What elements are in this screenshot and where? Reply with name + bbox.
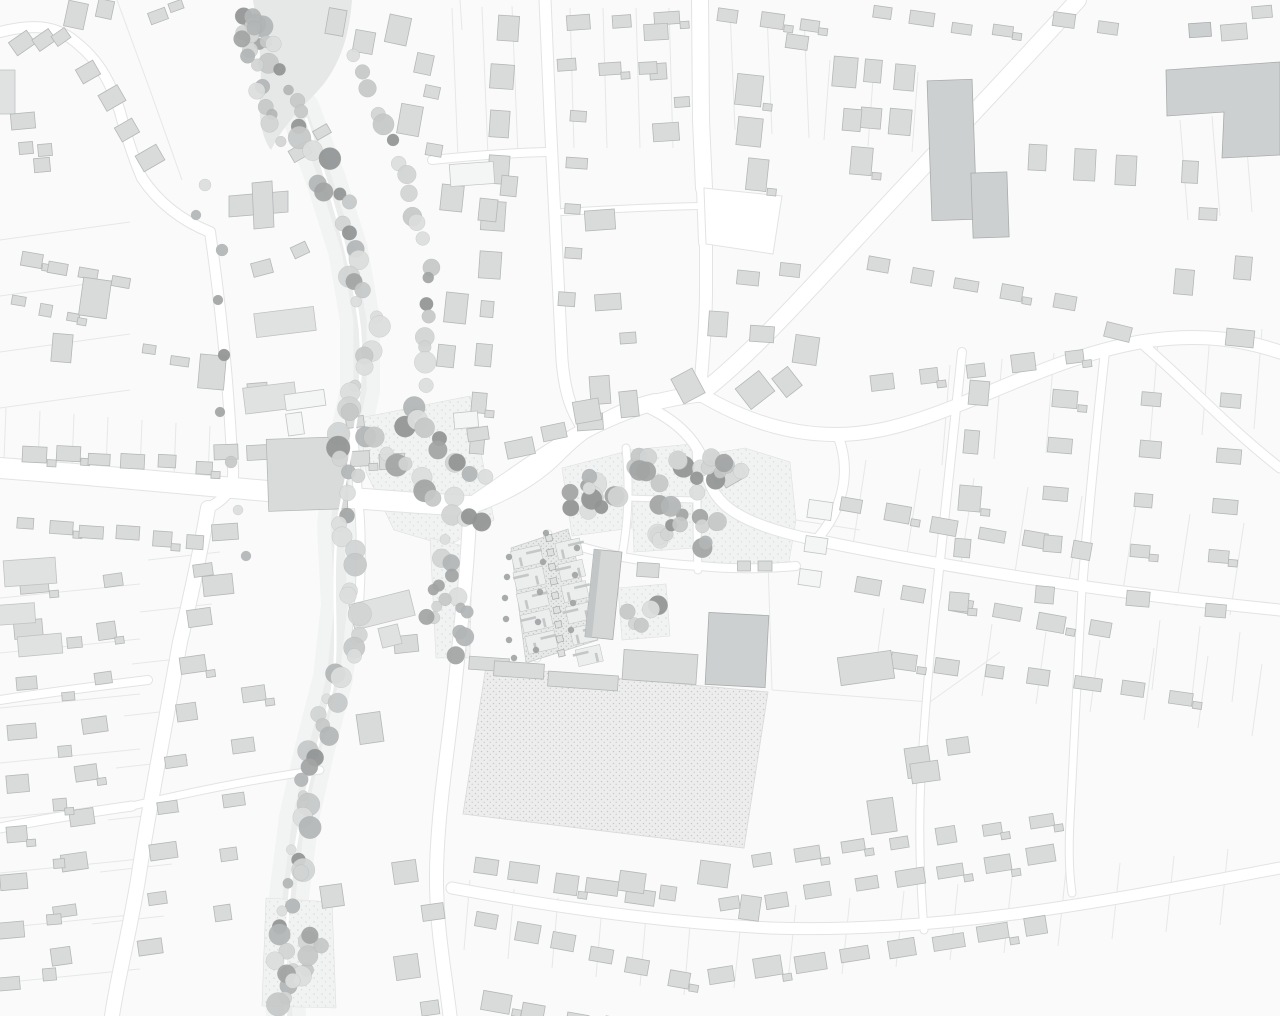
tree — [225, 456, 237, 468]
building — [1192, 701, 1202, 709]
tree — [218, 349, 230, 361]
tree — [355, 282, 371, 298]
tree — [319, 148, 341, 170]
tree — [347, 49, 360, 62]
tree — [314, 182, 333, 201]
building — [820, 857, 830, 865]
building — [697, 860, 730, 888]
building — [554, 873, 580, 896]
building — [981, 509, 991, 517]
building — [1009, 937, 1019, 945]
tree — [351, 296, 362, 307]
building — [738, 895, 761, 922]
building — [550, 931, 575, 951]
building — [736, 116, 763, 147]
building — [49, 590, 59, 598]
building — [935, 825, 957, 845]
tree — [331, 667, 352, 688]
building — [97, 777, 107, 785]
building — [1028, 144, 1047, 171]
building — [708, 311, 729, 337]
building — [946, 737, 970, 756]
building — [213, 904, 231, 922]
tree — [478, 469, 493, 484]
tree — [583, 482, 596, 495]
tree — [445, 569, 458, 582]
building — [911, 267, 935, 286]
building — [622, 649, 698, 684]
building — [196, 461, 213, 474]
building — [186, 607, 212, 627]
building — [62, 692, 75, 701]
building — [206, 669, 216, 677]
tree — [299, 816, 322, 839]
building — [137, 938, 163, 956]
tree — [199, 179, 211, 191]
tree — [340, 587, 357, 604]
tree — [634, 618, 649, 633]
site-plan-page — [0, 0, 1280, 1016]
building — [1216, 448, 1242, 464]
building — [158, 454, 176, 468]
building — [467, 426, 490, 442]
tree — [241, 551, 251, 561]
building — [1220, 23, 1247, 41]
site-tree — [535, 619, 541, 625]
building — [1121, 680, 1145, 697]
building — [767, 188, 777, 196]
building — [659, 885, 677, 901]
site-tree — [540, 559, 546, 565]
building — [964, 874, 974, 882]
building — [1212, 498, 1238, 514]
building — [211, 523, 238, 541]
tree — [294, 105, 308, 119]
building — [286, 412, 305, 436]
building — [186, 535, 204, 550]
building — [1043, 535, 1062, 553]
building — [708, 966, 735, 985]
tree — [373, 114, 394, 135]
tree — [455, 628, 474, 647]
site-tree — [570, 600, 576, 606]
building — [1073, 149, 1096, 182]
building — [1115, 155, 1137, 186]
building — [992, 24, 1013, 37]
tree — [332, 451, 348, 467]
tree — [594, 500, 608, 514]
building — [0, 921, 25, 939]
building — [860, 107, 882, 129]
building — [115, 636, 125, 644]
building — [1225, 328, 1255, 348]
tree — [249, 83, 266, 100]
building — [421, 903, 445, 922]
building — [564, 204, 580, 215]
building — [350, 451, 370, 467]
building — [951, 22, 972, 35]
building — [968, 608, 978, 616]
building — [1134, 493, 1153, 508]
road — [700, 242, 706, 394]
building — [765, 892, 789, 910]
building — [804, 536, 828, 555]
building — [96, 621, 117, 641]
building — [449, 161, 494, 186]
tree — [216, 244, 228, 256]
building — [252, 181, 274, 229]
building — [164, 754, 187, 768]
building — [397, 103, 424, 136]
site-court-paver — [550, 577, 558, 585]
building — [1097, 21, 1118, 36]
building — [572, 398, 601, 424]
tree — [440, 534, 450, 544]
building — [1141, 392, 1161, 407]
tree — [387, 134, 399, 146]
tree — [356, 358, 373, 375]
tree — [562, 484, 579, 501]
building — [47, 460, 56, 467]
building — [618, 870, 647, 893]
building — [800, 19, 820, 33]
building — [436, 344, 455, 368]
building — [849, 146, 873, 175]
building — [49, 520, 73, 534]
building — [1130, 544, 1150, 558]
building — [149, 841, 178, 861]
building — [81, 716, 108, 735]
building — [1089, 620, 1112, 638]
building — [818, 28, 828, 36]
site-court-paver — [558, 649, 566, 657]
building — [265, 698, 275, 706]
plaza — [704, 188, 782, 254]
building — [872, 172, 882, 180]
building — [910, 760, 941, 784]
building — [784, 25, 794, 33]
tree — [247, 21, 261, 35]
building — [842, 108, 862, 131]
site-tree — [502, 595, 508, 601]
tree — [341, 403, 359, 421]
building — [779, 262, 800, 277]
building — [1082, 360, 1092, 368]
building — [594, 293, 621, 311]
tree — [277, 906, 287, 916]
building — [56, 445, 81, 461]
building — [478, 251, 502, 279]
building — [369, 463, 378, 470]
tree — [408, 214, 425, 231]
tree — [265, 36, 281, 52]
building — [211, 471, 220, 478]
building — [870, 373, 895, 391]
building — [753, 955, 784, 978]
building — [680, 21, 689, 29]
building — [378, 624, 402, 648]
building — [1026, 668, 1050, 687]
building — [1173, 269, 1194, 296]
building — [719, 896, 741, 911]
building — [148, 891, 168, 906]
building — [1047, 437, 1072, 454]
building — [1012, 32, 1022, 40]
tree — [276, 136, 287, 147]
building — [1228, 559, 1238, 567]
building — [231, 737, 255, 754]
site-court-paver — [548, 563, 556, 571]
building — [7, 723, 37, 740]
building — [478, 198, 498, 222]
building — [38, 143, 53, 156]
building — [620, 332, 637, 344]
building — [19, 141, 34, 154]
building — [982, 822, 1002, 836]
building — [103, 573, 123, 588]
building — [414, 52, 435, 75]
building — [1011, 868, 1021, 876]
building — [22, 446, 47, 463]
tree — [448, 454, 465, 471]
building — [971, 172, 1009, 238]
tree — [283, 878, 293, 888]
building — [958, 485, 982, 512]
building — [1149, 554, 1159, 562]
building — [74, 764, 98, 783]
tree — [398, 457, 412, 471]
building — [474, 857, 499, 875]
building — [1181, 161, 1198, 184]
building — [948, 592, 969, 612]
building — [222, 792, 245, 808]
tree — [215, 407, 225, 417]
building — [578, 891, 588, 899]
tree — [286, 845, 296, 855]
site-tree — [568, 627, 574, 633]
site-tree — [572, 572, 578, 578]
tree — [364, 427, 385, 448]
building — [963, 430, 980, 454]
building — [320, 884, 345, 909]
building — [1000, 284, 1024, 302]
building — [745, 158, 769, 192]
site-court-paver — [556, 635, 564, 643]
building — [500, 175, 518, 197]
tree — [672, 517, 688, 533]
building — [489, 64, 514, 90]
tree — [447, 646, 465, 664]
building — [738, 561, 751, 571]
building — [50, 946, 72, 966]
tree — [398, 165, 417, 184]
building — [1189, 22, 1212, 38]
building — [88, 453, 110, 465]
building — [612, 15, 631, 29]
building — [202, 573, 234, 596]
tree — [320, 727, 339, 746]
site-tree — [503, 616, 509, 622]
building — [910, 519, 920, 527]
building — [356, 711, 384, 744]
tree — [261, 115, 279, 133]
tree — [431, 601, 442, 612]
tree — [400, 185, 417, 202]
building — [1126, 590, 1150, 607]
building — [752, 852, 773, 867]
tree — [695, 519, 709, 533]
building — [1024, 915, 1048, 936]
building — [1011, 352, 1037, 372]
building — [171, 544, 180, 552]
building — [3, 557, 57, 587]
building — [717, 8, 738, 24]
tree — [461, 606, 474, 619]
building — [175, 702, 197, 722]
building — [557, 58, 576, 71]
tree — [233, 505, 243, 515]
building — [94, 671, 113, 685]
building — [514, 922, 541, 944]
building — [440, 184, 465, 212]
building — [1234, 256, 1253, 280]
building — [0, 873, 28, 891]
site-court-paver — [553, 606, 561, 614]
building — [749, 325, 774, 343]
building — [33, 157, 50, 172]
tree — [444, 487, 464, 507]
tree — [347, 649, 362, 664]
building — [1052, 389, 1078, 409]
building — [1065, 350, 1084, 365]
site-tree — [533, 647, 539, 653]
building — [6, 774, 30, 793]
building — [1208, 549, 1229, 563]
building — [116, 525, 140, 540]
building — [6, 825, 28, 842]
building — [888, 108, 912, 135]
building — [1035, 586, 1055, 604]
building — [985, 664, 1004, 679]
tree — [344, 553, 367, 576]
building — [735, 73, 764, 106]
building — [480, 300, 494, 317]
building — [0, 603, 36, 626]
site-tree — [574, 545, 580, 551]
road — [700, 0, 704, 188]
site-tree — [537, 589, 543, 595]
building — [1065, 628, 1075, 636]
map-canvas — [0, 0, 1280, 1016]
tree — [266, 993, 290, 1016]
tree — [191, 210, 201, 220]
building — [142, 344, 156, 355]
building — [193, 563, 214, 578]
building — [889, 836, 909, 850]
building — [584, 209, 615, 231]
building — [42, 968, 56, 981]
building — [120, 453, 145, 469]
tree — [355, 65, 370, 80]
building — [570, 110, 587, 122]
building — [220, 847, 238, 862]
site-court-paver — [554, 621, 562, 629]
tree — [642, 601, 660, 619]
building — [1205, 603, 1227, 618]
tree — [301, 927, 318, 944]
site-court-paver — [547, 549, 555, 557]
tree — [420, 297, 434, 311]
building — [157, 800, 179, 815]
building — [566, 157, 588, 169]
building — [1054, 824, 1064, 832]
tree — [629, 460, 649, 480]
building — [443, 292, 468, 324]
tree — [715, 454, 733, 472]
building — [153, 531, 173, 548]
building — [1052, 12, 1076, 29]
building — [1220, 393, 1241, 409]
tree — [428, 584, 439, 595]
tree — [414, 351, 436, 373]
tree — [416, 232, 430, 246]
building — [966, 363, 986, 378]
building — [668, 970, 691, 989]
building — [558, 292, 576, 307]
tree — [342, 225, 357, 240]
building — [864, 848, 874, 856]
building — [954, 538, 971, 558]
building — [1022, 297, 1032, 305]
building — [392, 859, 419, 884]
building — [968, 380, 990, 406]
building — [453, 411, 478, 429]
site-court-paver — [551, 592, 559, 600]
building — [763, 103, 773, 111]
building — [934, 658, 960, 676]
tree — [419, 609, 435, 625]
tree — [251, 59, 264, 72]
building — [1001, 831, 1011, 839]
building — [798, 569, 822, 588]
building — [420, 1000, 440, 1016]
tree — [283, 85, 293, 95]
building — [39, 303, 53, 317]
building — [10, 112, 35, 130]
tree — [661, 496, 681, 516]
building — [95, 0, 114, 19]
tree — [424, 490, 441, 507]
tree — [340, 485, 356, 501]
tree — [293, 865, 309, 881]
building — [508, 861, 540, 883]
tree — [690, 472, 703, 485]
site-tree — [543, 530, 549, 536]
tree — [462, 466, 478, 482]
building — [512, 1009, 522, 1016]
building — [1071, 540, 1092, 560]
building — [485, 410, 495, 418]
building — [565, 247, 582, 259]
building — [16, 676, 38, 691]
building — [475, 343, 493, 367]
building — [894, 64, 916, 91]
building — [241, 685, 266, 703]
building — [919, 367, 938, 384]
tree — [690, 485, 706, 501]
tree — [269, 924, 290, 945]
building — [599, 62, 622, 76]
